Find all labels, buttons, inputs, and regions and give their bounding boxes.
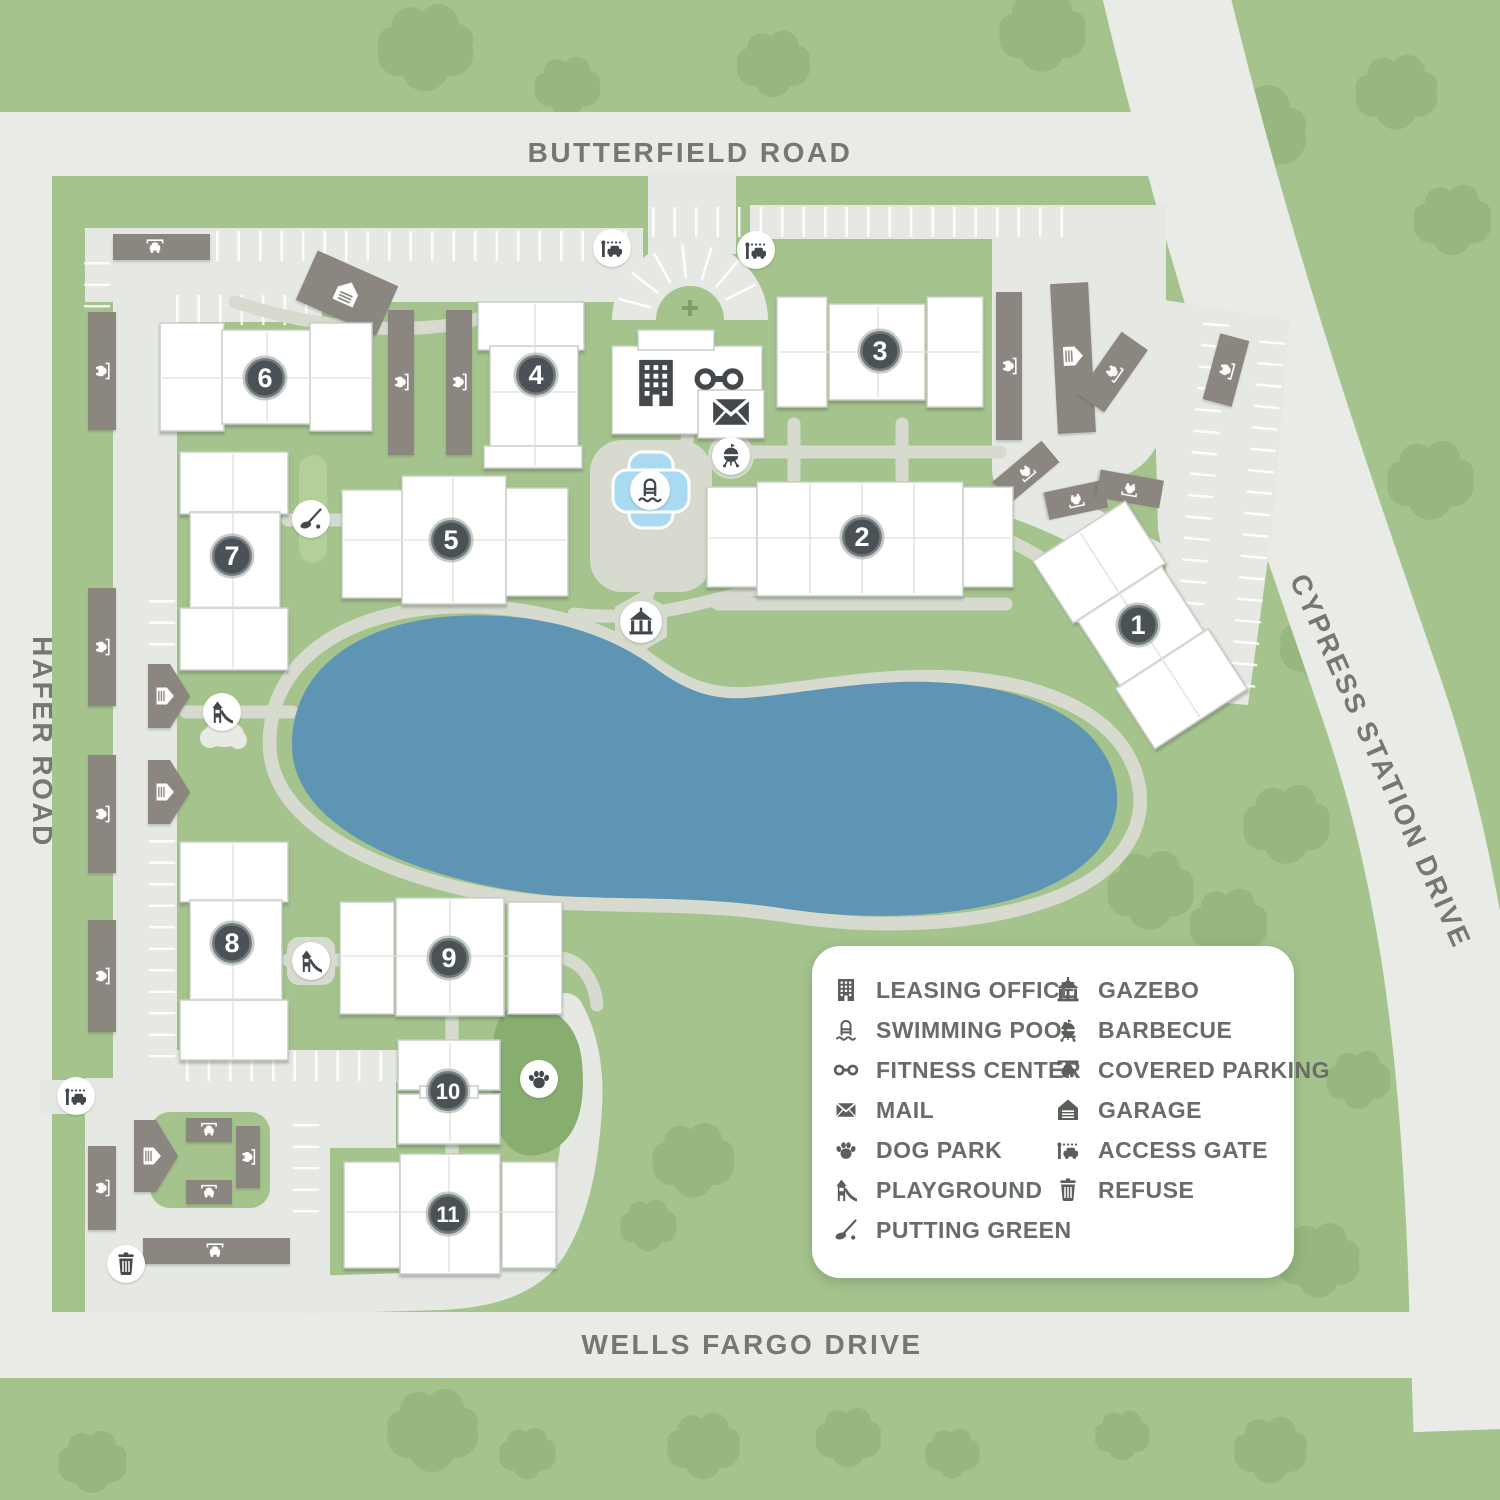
- leasing-office-icon: [639, 360, 673, 406]
- access-gate-icon: [737, 231, 775, 269]
- building-7-number: 7: [224, 541, 239, 571]
- badge-building-11: 11: [428, 1194, 468, 1234]
- building-5-number: 5: [443, 525, 458, 555]
- legend: LEASING OFFICE SWIMMING POOL FITNESS CEN…: [812, 946, 1330, 1278]
- mail-icon: [713, 399, 749, 425]
- access-gate-icon: [593, 229, 631, 267]
- legend-label: FITNESS CENTER: [876, 1057, 1081, 1083]
- legend-label: PLAYGROUND: [876, 1177, 1042, 1203]
- putting-green-icon: [292, 500, 330, 538]
- legend-label: BARBECUE: [1098, 1017, 1232, 1043]
- legend-label: MAIL: [876, 1097, 934, 1123]
- badge-building-9: 9: [429, 938, 469, 978]
- building-10-number: 10: [436, 1079, 460, 1104]
- building-3-number: 3: [872, 336, 887, 366]
- swimming-pool-icon: [630, 470, 670, 510]
- building-9-number: 9: [441, 943, 456, 973]
- badge-building-10: 10: [428, 1071, 468, 1111]
- legend-label: COVERED PARKING: [1098, 1057, 1330, 1083]
- badge-building-5: 5: [431, 520, 471, 560]
- legend-label: GAZEBO: [1098, 977, 1199, 1003]
- leasing-office-icon: [838, 979, 854, 1001]
- mail-icon: [837, 1103, 856, 1117]
- badge-building-8: 8: [212, 923, 252, 963]
- refuse-icon: [107, 1245, 145, 1283]
- legend-label: GARAGE: [1098, 1097, 1202, 1123]
- refuse-icon: [1060, 1179, 1076, 1202]
- access-gate-icon: [57, 1077, 95, 1115]
- badge-building-3: 3: [860, 331, 900, 371]
- legend-label: PUTTING GREEN: [876, 1217, 1072, 1243]
- playground-icon: [292, 942, 330, 980]
- legend-label: ACCESS GATE: [1098, 1137, 1268, 1163]
- legend-label: LEASING OFFICE: [876, 977, 1076, 1003]
- building-11-number: 11: [436, 1202, 459, 1227]
- wells-fargo-drive-label: WELLS FARGO DRIVE: [581, 1329, 922, 1360]
- badge-building-6: 6: [245, 358, 285, 398]
- badge-building-4: 4: [516, 355, 556, 395]
- building-1-number: 1: [1130, 610, 1145, 640]
- site-map: 1 2 3 4 5 6 7 8 9 10 11 BUTTERFIELD ROAD…: [0, 0, 1500, 1500]
- legend-label: REFUSE: [1098, 1177, 1194, 1203]
- legend-label: SWIMMING POOL: [876, 1017, 1077, 1043]
- dog-park-icon: [520, 1060, 558, 1098]
- building-4-number: 4: [528, 360, 543, 390]
- building-8-number: 8: [224, 928, 239, 958]
- barbecue-icon: [712, 437, 750, 475]
- legend-label: DOG PARK: [876, 1137, 1002, 1163]
- badge-building-7: 7: [212, 536, 252, 576]
- building-2-number: 2: [854, 522, 869, 552]
- playground-icon: [203, 693, 241, 731]
- badge-building-1: 1: [1118, 605, 1158, 645]
- badge-building-2: 2: [842, 517, 882, 557]
- building-6-number: 6: [257, 363, 272, 393]
- legend-item-covered-parking: COVERED PARKING: [1059, 1057, 1331, 1083]
- gazebo-icon: [620, 601, 662, 643]
- butterfield-road-label: BUTTERFIELD ROAD: [528, 137, 853, 168]
- hafer-road-label: HAFER ROAD: [27, 636, 58, 848]
